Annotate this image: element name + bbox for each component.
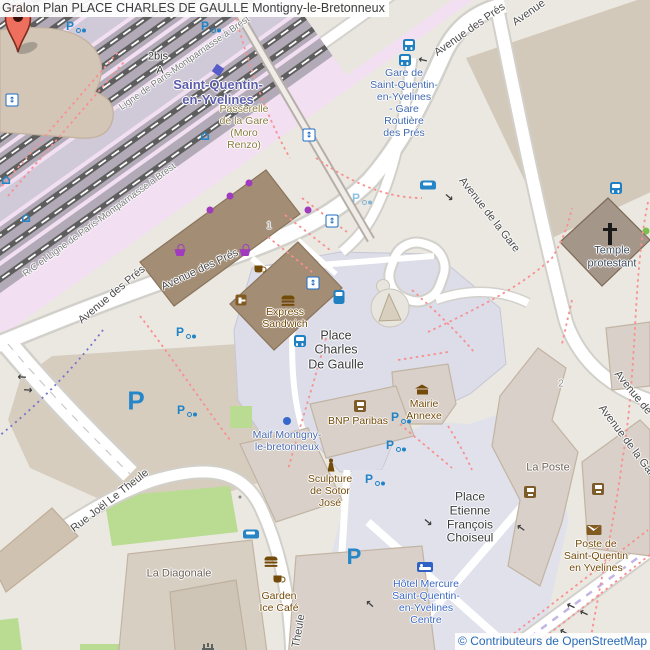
map-geometry xyxy=(0,0,650,650)
map-title: Gralon Plan PLACE CHARLES DE GAULLE Mont… xyxy=(0,0,389,17)
hotel-mercure-building xyxy=(288,546,436,650)
osm-attribution[interactable]: © Contributeurs de OpenStreetMap xyxy=(455,633,650,650)
east-building xyxy=(606,322,650,390)
map-canvas[interactable]: Ligne de Paris-Montparnasse à BrestR.C e… xyxy=(0,0,650,650)
green-patch xyxy=(230,406,252,428)
